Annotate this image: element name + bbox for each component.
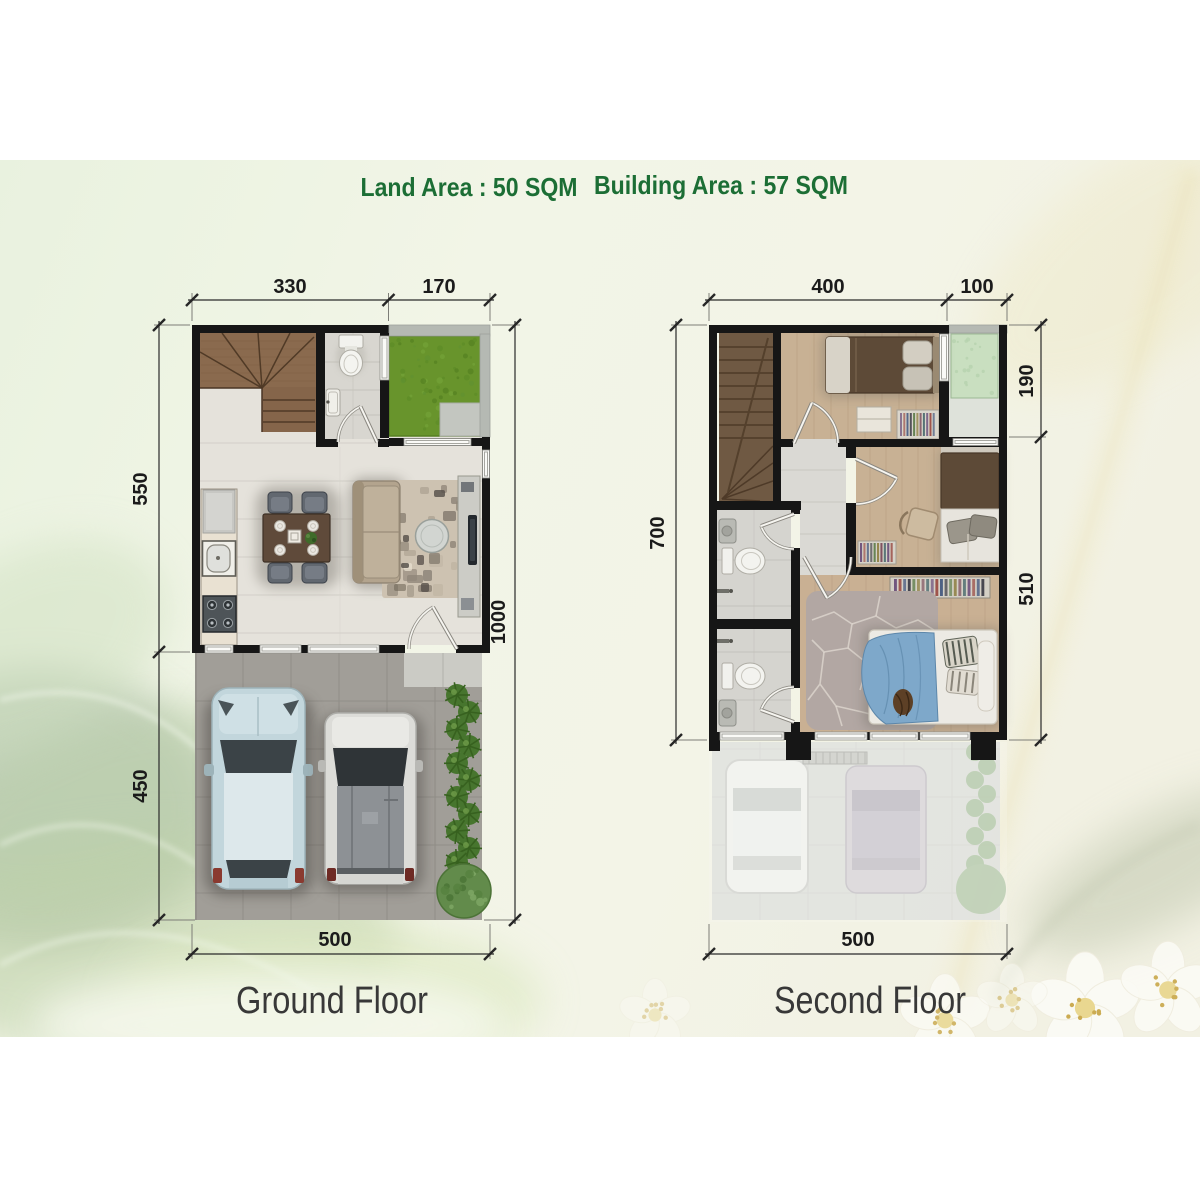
svg-text:700: 700 <box>647 516 669 549</box>
svg-text:510: 510 <box>1016 572 1038 605</box>
svg-text:100: 100 <box>960 276 993 298</box>
svg-text:1000: 1000 <box>488 600 510 645</box>
svg-text:500: 500 <box>318 929 351 951</box>
svg-text:190: 190 <box>1016 364 1038 397</box>
svg-text:400: 400 <box>811 276 844 298</box>
svg-text:500: 500 <box>841 929 874 951</box>
svg-text:550: 550 <box>130 472 152 505</box>
svg-text:Second Floor: Second Floor <box>774 980 966 1022</box>
svg-text:Land Area : 50 SQM: Land Area : 50 SQM <box>361 172 578 202</box>
svg-text:330: 330 <box>273 276 306 298</box>
svg-text:170: 170 <box>422 276 455 298</box>
svg-text:450: 450 <box>130 769 152 802</box>
svg-text:Building Area : 57 SQM: Building Area : 57 SQM <box>594 170 848 200</box>
svg-text:Ground Floor: Ground Floor <box>236 980 428 1022</box>
